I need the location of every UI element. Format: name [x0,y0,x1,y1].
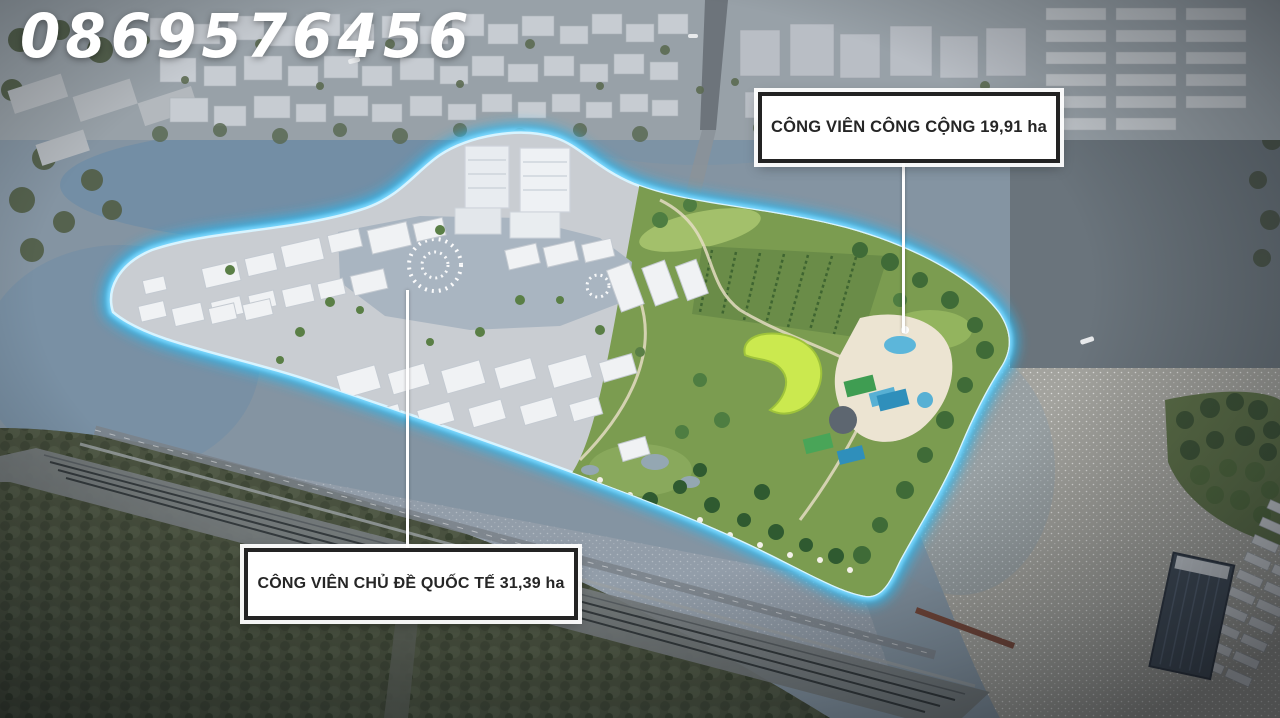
public-park-leader-line [902,155,905,333]
theme-park-leader-line [406,290,409,550]
public-park-label-text: CÔNG VIÊN CÔNG CỘNG 19,91 ha [771,118,1047,137]
public-park-label: CÔNG VIÊN CÔNG CỘNG 19,91 ha [758,92,1060,163]
masterplan-aerial-render [0,0,1280,718]
aerial-masterplan-screenshot: 0869576456 CÔNG VIÊN CÔNG CỘNG 19,91 ha … [0,0,1280,718]
watermark-phone-number: 0869576456 [20,1,474,72]
theme-park-label-text: CÔNG VIÊN CHỦ ĐỀ QUỐC TẾ 31,39 ha [257,575,564,593]
theme-park-label: CÔNG VIÊN CHỦ ĐỀ QUỐC TẾ 31,39 ha [244,548,578,620]
